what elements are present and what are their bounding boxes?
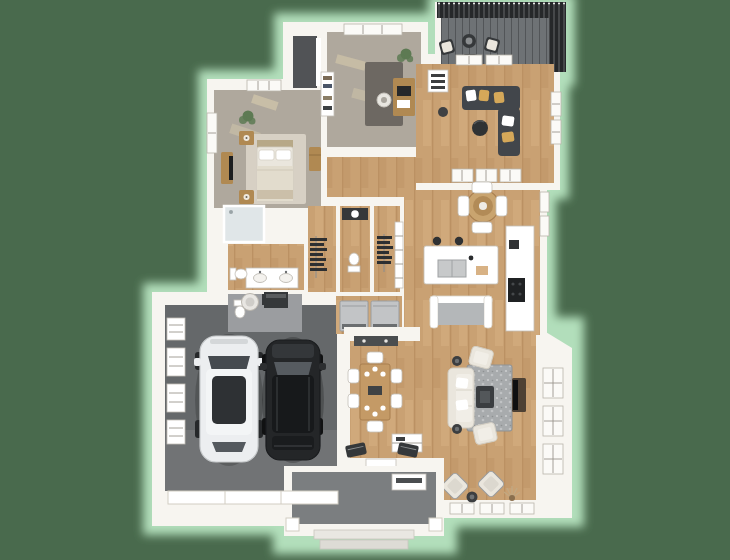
desk — [393, 78, 415, 116]
black-suv — [260, 337, 326, 463]
deck-railing-top — [437, 2, 566, 18]
faucet — [469, 256, 474, 261]
interior-window — [500, 169, 521, 182]
bed-throw — [257, 190, 293, 199]
nook-chair — [496, 196, 507, 216]
hood — [272, 344, 314, 358]
pillow — [478, 90, 489, 102]
mirror — [319, 363, 326, 370]
mirror — [260, 363, 267, 370]
porch-column — [429, 518, 442, 531]
toilet — [230, 268, 247, 280]
pillow — [501, 115, 514, 127]
sink — [280, 274, 293, 283]
armchair — [472, 422, 497, 445]
tailgate — [272, 436, 314, 450]
loveseat — [430, 296, 492, 328]
bar-stool — [455, 237, 463, 245]
bar-stool — [433, 237, 441, 245]
bedroom-window-top — [247, 80, 281, 91]
floorplan-render — [0, 0, 730, 560]
kitchen-island — [424, 246, 498, 284]
cream-sofa — [448, 368, 474, 428]
bed — [257, 140, 293, 201]
panoramic-roof — [212, 376, 246, 424]
pillow — [465, 89, 476, 101]
round-ottoman — [472, 120, 488, 136]
tv-console — [512, 378, 526, 412]
pillow — [455, 377, 468, 389]
cutting-board — [476, 266, 488, 275]
roof — [272, 375, 314, 433]
centerpiece — [368, 386, 382, 395]
white-suv — [194, 334, 264, 466]
sink — [254, 274, 267, 283]
countertop-appliance — [509, 240, 519, 249]
dining-chair — [391, 369, 402, 383]
dining-chair — [391, 394, 402, 408]
office-closet-floor — [293, 36, 317, 88]
pillow — [494, 92, 505, 104]
tall-chest — [309, 147, 321, 171]
pillow — [455, 399, 468, 411]
porch-step — [314, 530, 414, 539]
sideboard — [354, 336, 398, 346]
dining-chair — [367, 421, 383, 432]
interior-window — [476, 169, 497, 182]
rear-window — [212, 442, 246, 452]
pillow — [259, 150, 274, 160]
hallway-floor — [327, 157, 416, 197]
garage-door — [168, 491, 338, 504]
toilet — [348, 253, 360, 272]
nook-chair — [472, 182, 492, 193]
dining-chair — [367, 352, 383, 363]
nook-chair — [472, 222, 492, 233]
deck-railing-right — [549, 2, 566, 72]
pillow — [276, 150, 291, 160]
laptop — [397, 86, 411, 96]
black-range — [508, 278, 525, 302]
tv — [513, 380, 518, 410]
fire-table — [476, 386, 494, 408]
closet-slider-door — [316, 38, 321, 86]
porch-step — [320, 540, 408, 549]
tv-on-dresser — [229, 156, 233, 180]
interior-window — [452, 169, 473, 182]
papers — [397, 100, 410, 108]
windshield — [208, 356, 250, 371]
office-windows — [344, 24, 402, 35]
dining-chair — [348, 369, 359, 383]
porch-column — [286, 518, 299, 531]
dining-chair — [348, 394, 359, 408]
east-wall-windows — [543, 368, 563, 474]
mirror — [194, 358, 201, 366]
small-chair — [438, 107, 448, 117]
pillow — [501, 131, 514, 143]
windshield — [274, 362, 312, 377]
corridor-floor — [404, 197, 416, 335]
nook-chair — [458, 196, 469, 216]
shower-head — [229, 210, 233, 214]
